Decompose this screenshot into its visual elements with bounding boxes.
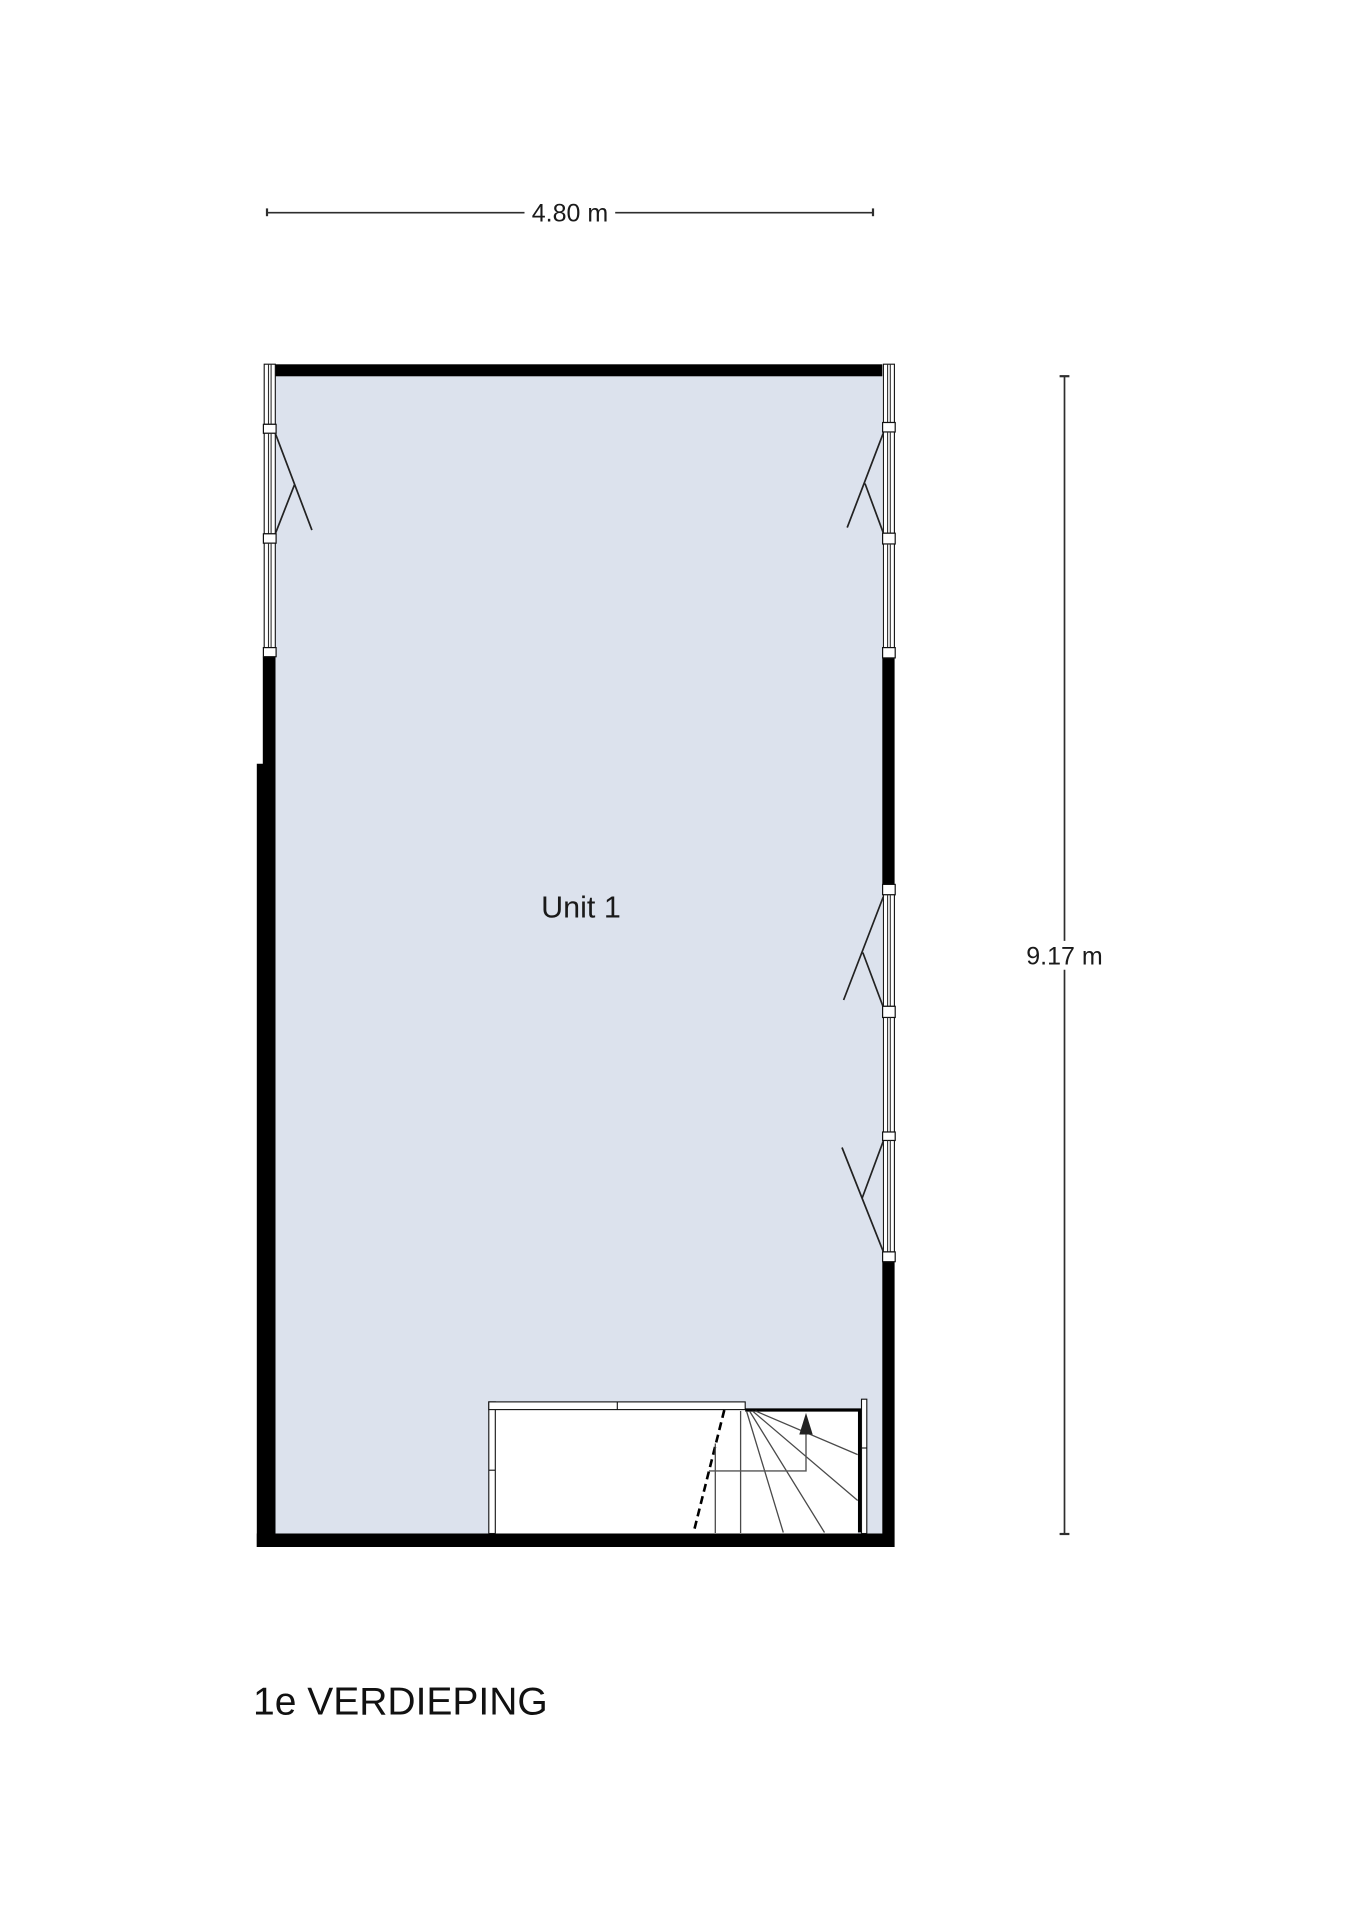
svg-text:9.17 m: 9.17 m [1026, 942, 1102, 970]
svg-text:4.80 m: 4.80 m [532, 200, 608, 228]
svg-text:1e VERDIEPING: 1e VERDIEPING [253, 1681, 548, 1724]
svg-text:Unit 1: Unit 1 [541, 890, 621, 924]
